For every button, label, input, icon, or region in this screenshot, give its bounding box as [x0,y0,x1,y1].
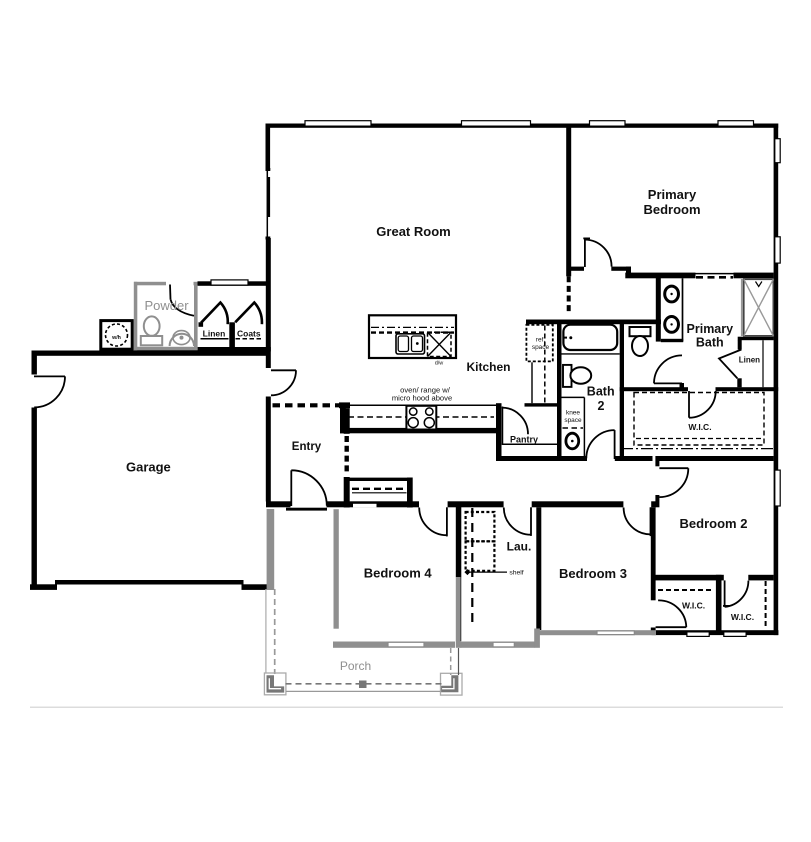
svg-text:shelf: shelf [509,569,523,576]
svg-text:space: space [564,417,582,424]
svg-text:d/w: d/w [435,361,444,367]
svg-text:Entry: Entry [292,441,322,453]
svg-text:space: space [532,344,550,351]
svg-text:Linen: Linen [203,328,226,338]
svg-text:Bedroom 4: Bedroom 4 [364,566,433,581]
svg-text:Coats: Coats [237,328,261,338]
svg-text:W.I.C.: W.I.C. [688,422,711,432]
svg-text:Porch: Porch [340,659,371,673]
svg-text:ref.: ref. [536,337,546,344]
svg-text:knee: knee [566,410,580,417]
svg-text:W.I.C.: W.I.C. [682,601,705,611]
svg-text:Bath: Bath [696,335,724,349]
svg-text:Primary: Primary [648,187,697,202]
svg-text:W.I.C.: W.I.C. [731,612,754,622]
svg-text:Linen: Linen [739,355,760,364]
svg-text:Primary: Primary [687,322,734,336]
svg-text:Pantry: Pantry [510,435,538,445]
svg-text:Lau.: Lau. [507,540,532,554]
svg-text:Bedroom 2: Bedroom 2 [680,516,748,531]
svg-text:micro hood above: micro hood above [392,394,452,403]
svg-text:Powder: Powder [144,298,189,313]
svg-text:Garage: Garage [126,460,171,475]
svg-text:w/h: w/h [111,335,121,341]
svg-text:2: 2 [598,399,605,413]
svg-text:Bedroom: Bedroom [643,202,700,217]
svg-text:Bedroom 3: Bedroom 3 [559,566,627,581]
svg-text:Bath: Bath [587,385,615,399]
svg-text:Great Room: Great Room [376,224,450,239]
svg-text:Kitchen: Kitchen [466,360,510,374]
